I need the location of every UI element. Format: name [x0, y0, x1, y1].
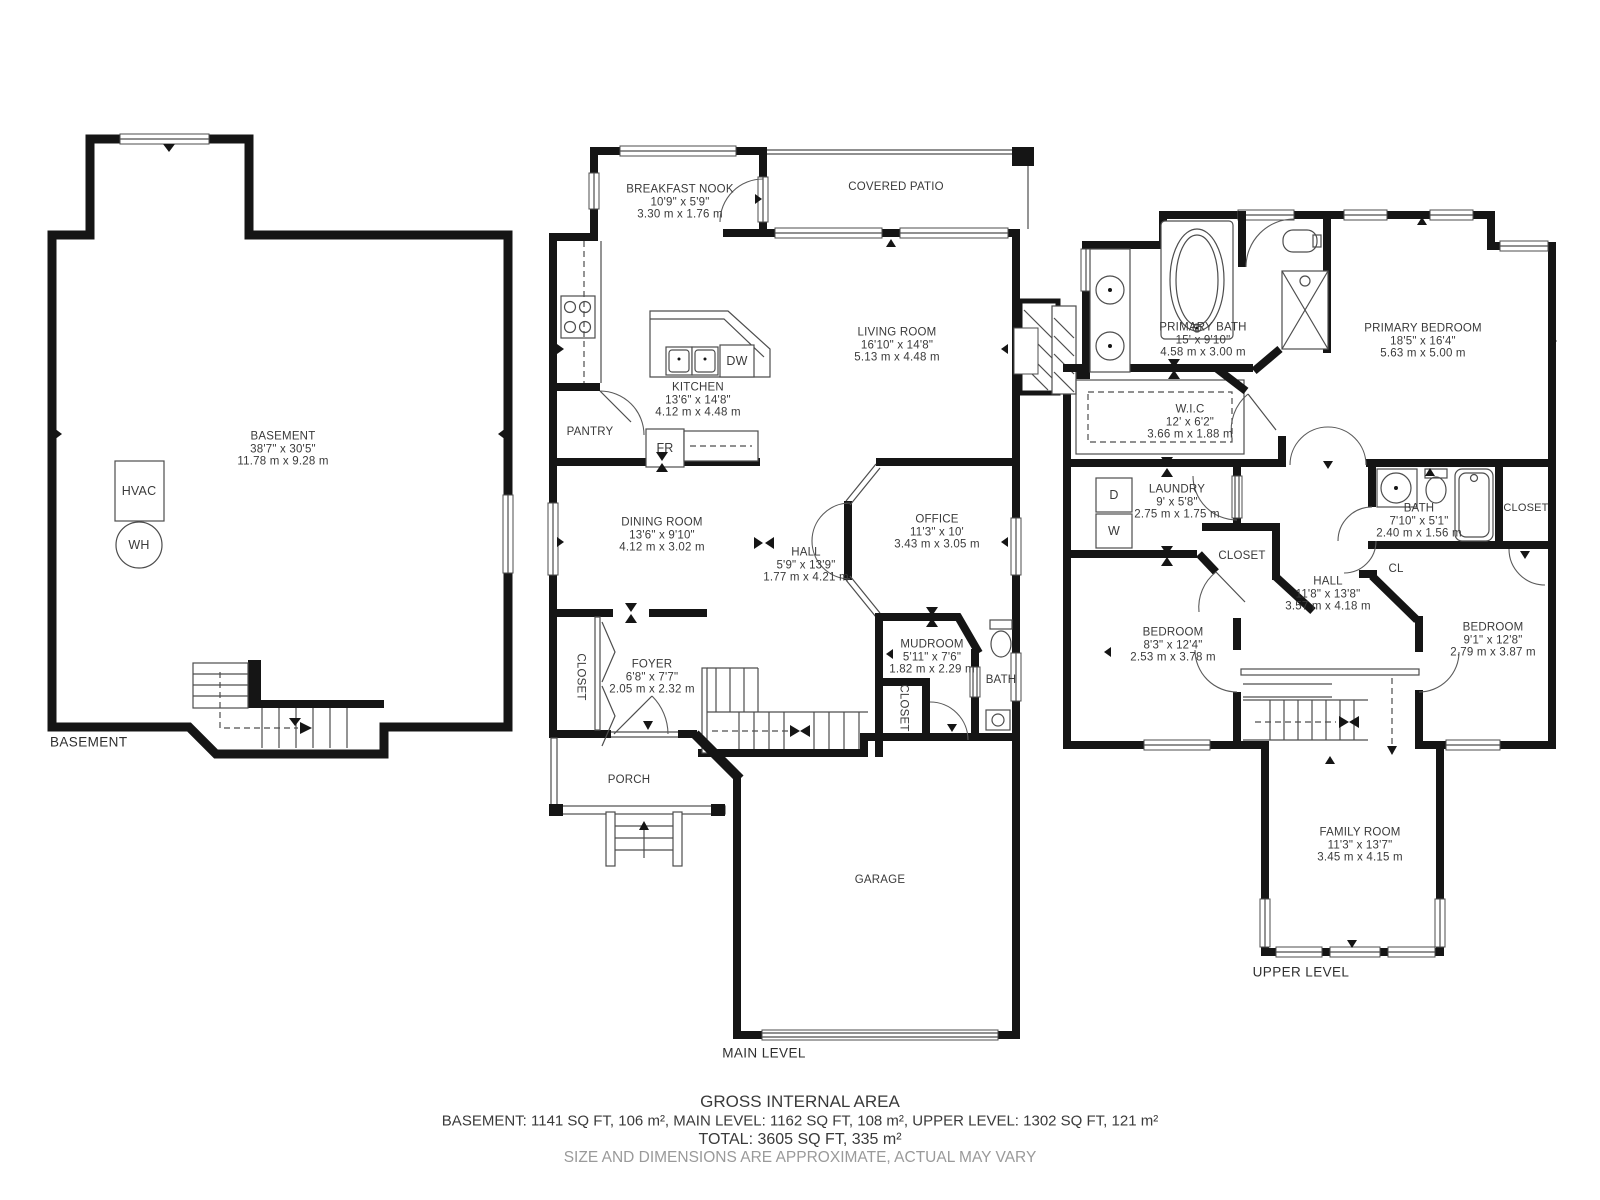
room-dim-imperial: 38'7" x 30'5"	[237, 443, 328, 456]
room-label-wic: W.I.C 12' x 6'2" 3.66 m x 1.88 m	[1147, 403, 1232, 441]
room-name: KITCHEN	[655, 381, 740, 394]
room-dim-metric: 2.79 m x 3.87 m	[1450, 646, 1535, 659]
room-name: HALL	[1285, 575, 1370, 588]
label-closet-foyer: CLOSET	[574, 653, 587, 700]
toilet-icon	[1283, 230, 1317, 252]
room-dim-metric: 2.53 m x 3.78 m	[1130, 651, 1215, 664]
room-dim-metric: 2.05 m x 2.32 m	[609, 683, 694, 696]
room-label-dining-room: DINING ROOM 13'6" x 9'10" 4.12 m x 3.02 …	[619, 516, 704, 554]
room-dim-imperial: 12' x 6'2"	[1147, 416, 1232, 429]
room-dim-metric: 5.63 m x 5.00 m	[1364, 347, 1482, 360]
room-dim-imperial: 7'10" x 5'1"	[1376, 515, 1461, 528]
label-pantry: PANTRY	[567, 426, 614, 439]
label-cl: CL	[1388, 563, 1403, 576]
floor-label-main-level: MAIN LEVEL	[722, 1046, 806, 1061]
room-dim-metric: 3.30 m x 1.76 m	[626, 208, 733, 221]
label-closet-stairs: CLOSET	[897, 684, 910, 731]
room-label-breakfast-nook: BREAKFAST NOOK 10'9" x 5'9" 3.30 m x 1.7…	[626, 183, 733, 221]
room-dim-imperial: 18'5" x 16'4"	[1364, 335, 1482, 348]
room-dim-imperial: 13'6" x 14'8"	[655, 394, 740, 407]
room-dim-imperial: 5'9" x 13'9"	[763, 559, 848, 572]
room-name: FOYER	[609, 658, 694, 671]
room-dim-metric: 4.12 m x 4.48 m	[655, 406, 740, 419]
room-name: OFFICE	[894, 513, 979, 526]
footer-total-area: TOTAL: 3605 SQ FT, 335 m²	[698, 1131, 901, 1149]
room-dim-metric: 2.75 m x 1.75 m	[1134, 508, 1219, 521]
room-dim-imperial: 6'8" x 7'7"	[609, 671, 694, 684]
room-dim-imperial: 9'1" x 12'8"	[1450, 634, 1535, 647]
room-label-bedroom-left: BEDROOM 8'3" x 12'4" 2.53 m x 3.78 m	[1130, 626, 1215, 664]
room-name: DINING ROOM	[619, 516, 704, 529]
room-dim-metric: 1.77 m x 4.21 m	[763, 571, 848, 584]
room-dim-metric: 11.78 m x 9.28 m	[237, 455, 328, 468]
room-dim-metric: 4.58 m x 3.00 m	[1159, 346, 1246, 359]
room-dim-imperial: 16'10" x 14'8"	[854, 339, 939, 352]
room-label-hall-upper: HALL 11'8" x 13'8" 3.57 m x 4.18 m	[1285, 575, 1370, 613]
room-dim-imperial: 13'6" x 9'10"	[619, 529, 704, 542]
room-label-bath-upper: BATH 7'10" x 5'1" 2.40 m x 1.56 m	[1376, 502, 1461, 540]
main-level-plan	[548, 146, 1058, 1040]
room-dim-metric: 3.45 m x 4.15 m	[1317, 851, 1402, 864]
toilet-icon	[990, 620, 1012, 629]
room-dim-imperial: 11'3" x 10'	[894, 526, 979, 539]
room-label-primary-bedroom: PRIMARY BEDROOM 18'5" x 16'4" 5.63 m x 5…	[1364, 322, 1482, 360]
footer-disclaimer: SIZE AND DIMENSIONS ARE APPROXIMATE, ACT…	[564, 1149, 1037, 1167]
label-closet-middle: CLOSET	[1218, 550, 1265, 563]
room-dim-imperial: 8'3" x 12'4"	[1130, 639, 1215, 652]
stove-icon	[561, 296, 595, 338]
fixture-label-hvac: HVAC	[122, 485, 157, 498]
room-label-primary-bath: PRIMARY BATH 15' x 9'10" 4.58 m x 3.00 m	[1159, 321, 1246, 359]
room-dim-imperial: 10'9" x 5'9"	[626, 196, 733, 209]
room-dim-metric: 3.43 m x 3.05 m	[894, 538, 979, 551]
room-name: BEDROOM	[1130, 626, 1215, 639]
label-porch: PORCH	[608, 774, 651, 787]
room-label-foyer: FOYER 6'8" x 7'7" 2.05 m x 2.32 m	[609, 658, 694, 696]
sink-icon	[986, 710, 1010, 730]
room-name: MUDROOM	[889, 638, 974, 651]
room-label-kitchen: KITCHEN 13'6" x 14'8" 4.12 m x 4.48 m	[655, 381, 740, 419]
room-label-hall-main: HALL 5'9" x 13'9" 1.77 m x 4.21 m	[763, 546, 848, 584]
floorplan-page: BASEMENT 38'7" x 30'5" 11.78 m x 9.28 m …	[0, 0, 1600, 1200]
room-label-bedroom-right: BEDROOM 9'1" x 12'8" 2.79 m x 3.87 m	[1450, 621, 1535, 659]
label-bath-main: BATH	[986, 674, 1017, 687]
room-dim-metric: 3.57 m x 4.18 m	[1285, 600, 1370, 613]
footer-area-breakdown: BASEMENT: 1141 SQ FT, 106 m², MAIN LEVEL…	[442, 1113, 1158, 1130]
fixture-label-dryer: D	[1109, 489, 1118, 502]
fixture-label-dishwasher: DW	[726, 355, 747, 368]
room-name: BREAKFAST NOOK	[626, 183, 733, 196]
room-dim-imperial: 11'3" x 13'7"	[1317, 839, 1402, 852]
room-dim-metric: 4.12 m x 3.02 m	[619, 541, 704, 554]
room-dim-metric: 1.82 m x 2.29 m	[889, 663, 974, 676]
room-label-laundry: LAUNDRY 9' x 5'8" 2.75 m x 1.75 m	[1134, 483, 1219, 521]
footer-gross-area-title: GROSS INTERNAL AREA	[700, 1092, 900, 1112]
fixture-label-washer: W	[1108, 525, 1120, 538]
room-dim-imperial: 9' x 5'8"	[1134, 496, 1219, 509]
room-dim-metric: 5.13 m x 4.48 m	[854, 351, 939, 364]
label-closet-upper-right: CLOSET	[1503, 502, 1548, 515]
room-name: FAMILY ROOM	[1317, 826, 1402, 839]
room-name: BEDROOM	[1450, 621, 1535, 634]
room-name: BASEMENT	[237, 430, 328, 443]
room-name: HALL	[763, 546, 848, 559]
room-dim-imperial: 15' x 9'10"	[1159, 334, 1246, 347]
room-name: LIVING ROOM	[854, 326, 939, 339]
label-garage: GARAGE	[855, 874, 905, 887]
floor-label-basement: BASEMENT	[50, 735, 127, 750]
room-dim-imperial: 11'8" x 13'8"	[1285, 588, 1370, 601]
floor-label-upper-level: UPPER LEVEL	[1253, 965, 1350, 980]
room-dim-imperial: 5'11" x 7'6"	[889, 651, 974, 664]
room-label-office: OFFICE 11'3" x 10' 3.43 m x 3.05 m	[894, 513, 979, 551]
room-name: PRIMARY BATH	[1159, 321, 1246, 334]
fixture-label-fridge: FR	[656, 442, 673, 455]
room-name: W.I.C	[1147, 403, 1232, 416]
label-covered-patio: COVERED PATIO	[848, 181, 943, 194]
fixture-label-water-heater: WH	[128, 539, 149, 552]
room-label-family-room: FAMILY ROOM 11'3" x 13'7" 3.45 m x 4.15 …	[1317, 826, 1402, 864]
room-label-mudroom: MUDROOM 5'11" x 7'6" 1.82 m x 2.29 m	[889, 638, 974, 676]
room-label-basement: BASEMENT 38'7" x 30'5" 11.78 m x 9.28 m	[237, 430, 328, 468]
room-name: PRIMARY BEDROOM	[1364, 322, 1482, 335]
room-dim-metric: 3.66 m x 1.88 m	[1147, 428, 1232, 441]
room-label-living-room: LIVING ROOM 16'10" x 14'8" 5.13 m x 4.48…	[854, 326, 939, 364]
room-name: LAUNDRY	[1134, 483, 1219, 496]
room-dim-metric: 2.40 m x 1.56 m	[1376, 527, 1461, 540]
room-name: BATH	[1376, 502, 1461, 515]
